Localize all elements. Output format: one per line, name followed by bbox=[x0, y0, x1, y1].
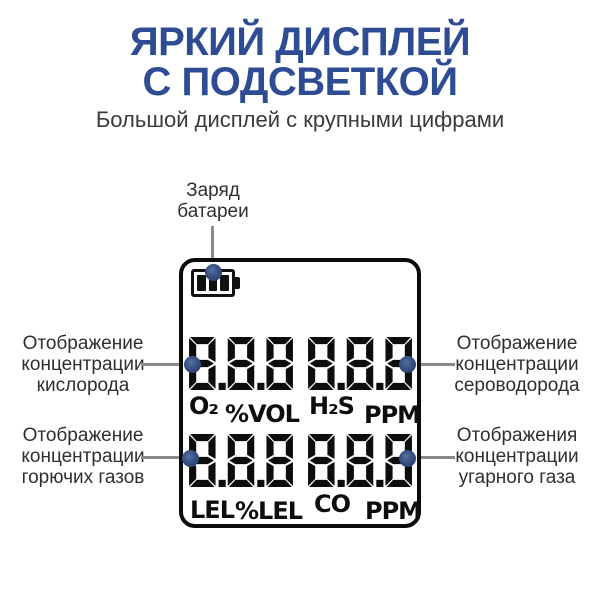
unit-label-co: CO bbox=[314, 491, 350, 517]
unit-label-ppm-top: PPM bbox=[364, 402, 420, 428]
segment-display-h2s bbox=[307, 336, 413, 391]
h2s-callout-line3: сероводорода bbox=[437, 375, 597, 396]
page-subtitle: Большой дисплей с крупными цифрами bbox=[0, 107, 600, 133]
unit-label-vol: %VOL bbox=[225, 401, 299, 427]
battery-callout-label: Заряд батареи bbox=[150, 180, 276, 222]
co-callout-line2: концентрации bbox=[437, 446, 597, 467]
battery-callout-line2: батареи bbox=[150, 201, 276, 222]
combustible-callout-line3: горючих газов bbox=[2, 467, 164, 488]
co-callout-label: Отображения концентрации угарного газа bbox=[437, 425, 597, 488]
device-display-panel: O₂ %VOL H₂S PPM LEL %LEL CO PPM bbox=[179, 258, 421, 528]
h2s-callout-label: Отображение концентрации сероводорода bbox=[437, 333, 597, 396]
callout-dot-h2s bbox=[399, 356, 416, 373]
callout-dot-co bbox=[399, 450, 416, 467]
unit-label-h2s: H₂S bbox=[309, 393, 354, 419]
combustible-callout-line1: Отображение bbox=[2, 425, 164, 446]
page-title-line1: ЯРКИЙ ДИСПЛЕЙ bbox=[0, 22, 600, 62]
co-callout-line3: угарного газа bbox=[437, 467, 597, 488]
callout-dot-battery bbox=[205, 264, 222, 281]
callout-dot-combustible bbox=[182, 450, 199, 467]
co-callout-line1: Отображения bbox=[437, 425, 597, 446]
unit-label-ppm-bottom: PPM bbox=[365, 498, 421, 524]
battery-icon-nub bbox=[235, 277, 240, 289]
combustible-callout-label: Отображение концентрации горючих газов bbox=[2, 425, 164, 488]
segment-display-oxygen bbox=[188, 336, 294, 391]
unit-label-o2: O₂ bbox=[189, 393, 218, 419]
unit-label-lel: LEL bbox=[190, 497, 234, 523]
page-title: ЯРКИЙ ДИСПЛЕЙ С ПОДСВЕТКОЙ bbox=[0, 22, 600, 102]
callout-dot-oxygen bbox=[184, 356, 201, 373]
segment-display-co bbox=[307, 433, 413, 488]
oxygen-callout-line1: Отображение bbox=[2, 333, 164, 354]
oxygen-callout-line2: концентрации bbox=[2, 354, 164, 375]
h2s-callout-line2: концентрации bbox=[437, 354, 597, 375]
infographic-canvas: ЯРКИЙ ДИСПЛЕЙ С ПОДСВЕТКОЙ Большой диспл… bbox=[0, 0, 600, 600]
unit-label-pct-lel: %LEL bbox=[235, 498, 302, 524]
battery-callout-line1: Заряд bbox=[150, 180, 276, 201]
segment-display-lel bbox=[188, 433, 294, 488]
oxygen-callout-line3: кислорода bbox=[2, 375, 164, 396]
combustible-callout-line2: концентрации bbox=[2, 446, 164, 467]
h2s-callout-line1: Отображение bbox=[437, 333, 597, 354]
page-title-line2: С ПОДСВЕТКОЙ bbox=[0, 62, 600, 102]
oxygen-callout-label: Отображение концентрации кислорода bbox=[2, 333, 164, 396]
